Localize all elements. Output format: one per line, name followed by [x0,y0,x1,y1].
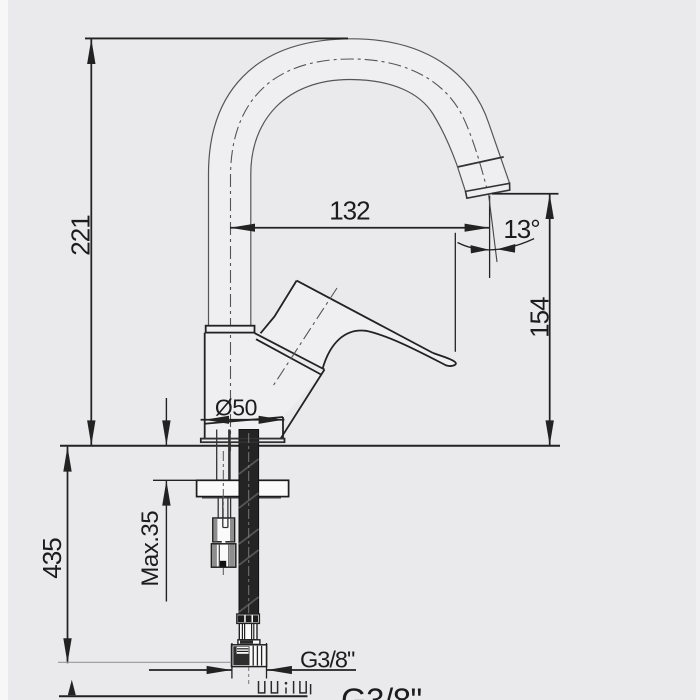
svg-text:132: 132 [329,195,370,225]
svg-text:G3/8": G3/8" [341,681,422,700]
svg-text:Max.35: Max.35 [137,511,164,587]
svg-text:Ø50: Ø50 [215,395,257,421]
svg-text:221: 221 [66,215,96,256]
svg-text:G3/8": G3/8" [300,647,355,673]
svg-text:435: 435 [37,538,67,579]
svg-text:154: 154 [525,297,555,338]
svg-text:13°: 13° [503,214,539,244]
